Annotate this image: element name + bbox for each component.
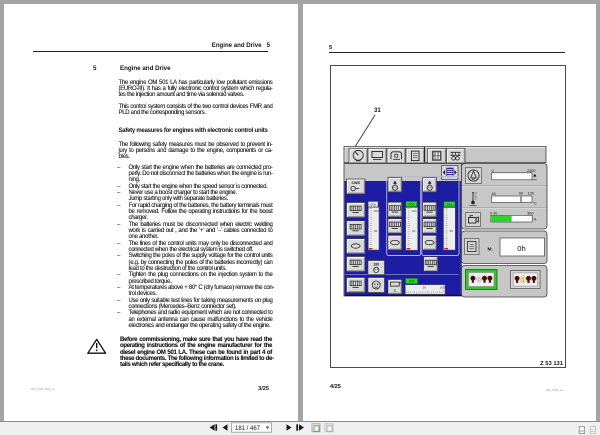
svg-text:0%: 0% xyxy=(447,202,453,207)
svg-text:0%: 0% xyxy=(370,202,376,207)
svg-text:2300: 2300 xyxy=(527,169,535,173)
svg-text:100: 100 xyxy=(373,209,378,213)
svg-text:99: 99 xyxy=(519,192,523,196)
svg-text:40: 40 xyxy=(492,192,496,196)
svg-text:0: 0 xyxy=(477,278,480,284)
svg-text:0%: 0% xyxy=(409,202,415,207)
svg-text:1: 1 xyxy=(521,278,524,284)
svg-text:0%: 0% xyxy=(409,279,415,284)
svg-text:100: 100 xyxy=(411,209,416,213)
svg-text:180: 180 xyxy=(373,263,379,267)
svg-text:CWS: CWS xyxy=(352,181,361,185)
svg-text:°C: °C xyxy=(533,202,537,206)
svg-text:360: 360 xyxy=(527,211,533,215)
svg-text:30: 30 xyxy=(374,229,378,233)
svg-text:181 / 467: 181 / 467 xyxy=(235,426,261,432)
svg-text:0 30: 0 30 xyxy=(490,211,497,215)
svg-text:120: 120 xyxy=(528,192,534,196)
svg-text:min: min xyxy=(532,178,537,182)
svg-text:%: % xyxy=(533,218,536,222)
svg-text:0: 0 xyxy=(492,169,494,173)
svg-text:0h: 0h xyxy=(517,244,525,253)
svg-text:30: 30 xyxy=(412,229,416,233)
svg-text:30: 30 xyxy=(423,286,427,290)
svg-text:100: 100 xyxy=(440,286,445,290)
svg-text:30: 30 xyxy=(450,229,454,233)
svg-text:M:: M: xyxy=(488,247,494,252)
